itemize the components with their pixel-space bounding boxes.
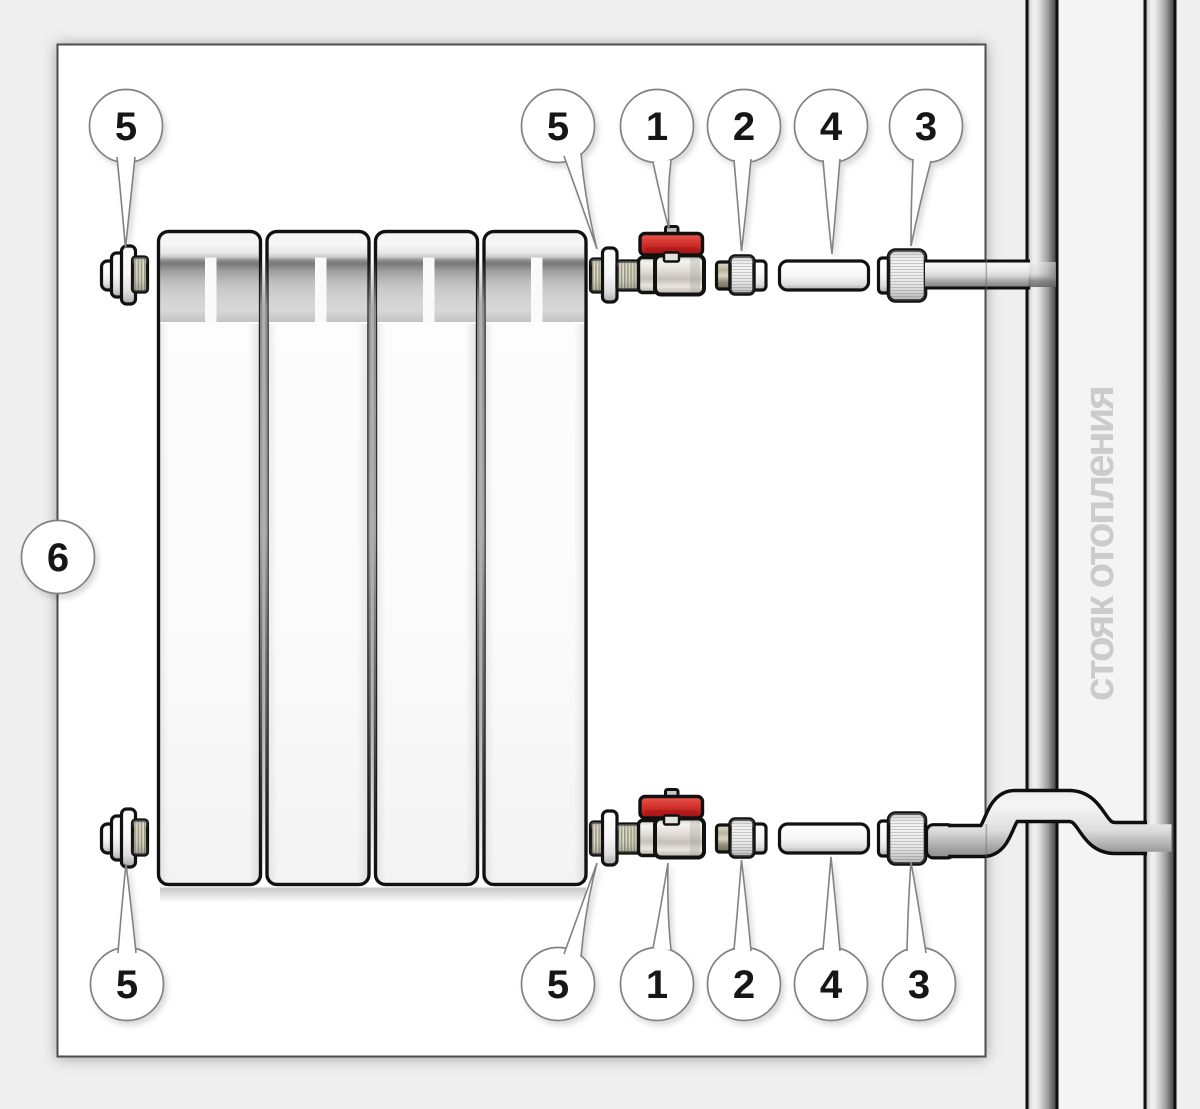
svg-text:1: 1 <box>646 105 668 149</box>
svg-text:стояк отопления: стояк отопления <box>1075 387 1122 701</box>
svg-text:5: 5 <box>115 105 137 149</box>
svg-text:5: 5 <box>116 963 138 1007</box>
svg-text:3: 3 <box>915 105 937 149</box>
svg-text:6: 6 <box>47 536 69 580</box>
svg-text:4: 4 <box>820 105 843 149</box>
svg-text:5: 5 <box>547 963 569 1007</box>
svg-text:2: 2 <box>733 963 755 1007</box>
svg-text:1: 1 <box>646 963 668 1007</box>
svg-text:4: 4 <box>820 963 843 1007</box>
svg-text:2: 2 <box>733 105 755 149</box>
svg-text:3: 3 <box>908 963 930 1007</box>
svg-text:5: 5 <box>547 105 569 149</box>
